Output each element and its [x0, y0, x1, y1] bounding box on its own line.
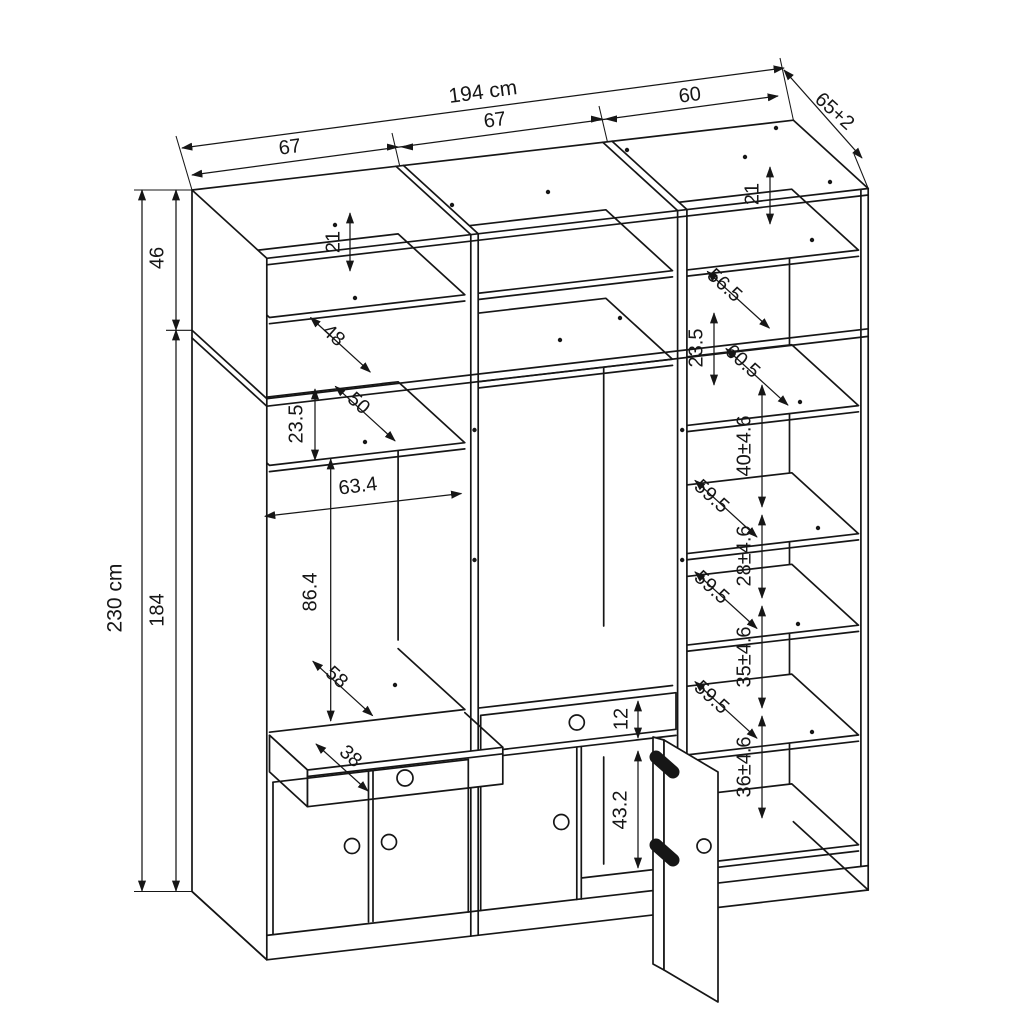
dim-total-height: 230 cm: [104, 190, 142, 891]
dim-upper-height-label: 46: [146, 247, 168, 269]
dim-left-width-label: 67: [277, 135, 302, 160]
dim-lower-height: 184: [146, 330, 176, 891]
open-drawer-knob: [397, 770, 413, 786]
dim-right-top-gap-label: 21: [741, 183, 763, 205]
dim-right-top-depth: 56.5: [703, 264, 770, 328]
dim-right-compartment-1-label: 40±4.6: [733, 415, 755, 476]
dim-left-shelf-gap-label: 23.5: [285, 405, 307, 444]
open-door-knob: [697, 839, 711, 853]
left-door-knob: [345, 839, 360, 854]
dim-left-top-gap-label: 21: [322, 231, 344, 253]
dim-total-height-label: 230 cm: [104, 564, 127, 633]
drawing-canvas: 194 cm 67 67 60 65+2 230 cm 46 18: [0, 0, 1024, 1024]
wardrobe-technical-drawing: 194 cm 67 67 60 65+2 230 cm 46 18: [0, 0, 1024, 1024]
dim-right-shelf-gap-label: 23.5: [685, 329, 707, 368]
dim-left-bottom-depth: 58: [313, 661, 373, 716]
dim-right-compartment-2-label: 28±4.6: [733, 525, 755, 586]
dim-lower-height-label: 184: [146, 593, 168, 626]
dim-right-compartment-3-label: 35±4.6: [733, 626, 755, 687]
dim-left-top-depth: 48: [311, 318, 371, 373]
middle-drawer-knob: [569, 715, 584, 730]
dim-depth: 65+2: [784, 70, 862, 158]
dim-left-opening-height-label: 86.4: [299, 573, 321, 612]
open-door: [653, 737, 718, 1002]
dim-right-compartment-4-label: 36±4.6: [733, 736, 755, 797]
dim-left-opening-width-label: 63.4: [337, 473, 378, 500]
dim-upper-height: 46: [146, 190, 176, 330]
left-side-panel: [192, 190, 267, 960]
dim-middle-width-label: 67: [482, 108, 507, 133]
middle-door-knob: [554, 815, 569, 830]
dim-total-width-label: 194 cm: [447, 76, 518, 108]
dim-middle-drawer-height-label: 12: [610, 708, 632, 730]
dim-right-width-label: 60: [677, 83, 702, 108]
dim-left-bottom-depth-label: 58: [321, 662, 352, 693]
dim-middle-door-height-label: 43.2: [609, 791, 631, 830]
left-door-knob: [382, 835, 397, 850]
dim-left-top-depth-label: 48: [318, 320, 349, 351]
